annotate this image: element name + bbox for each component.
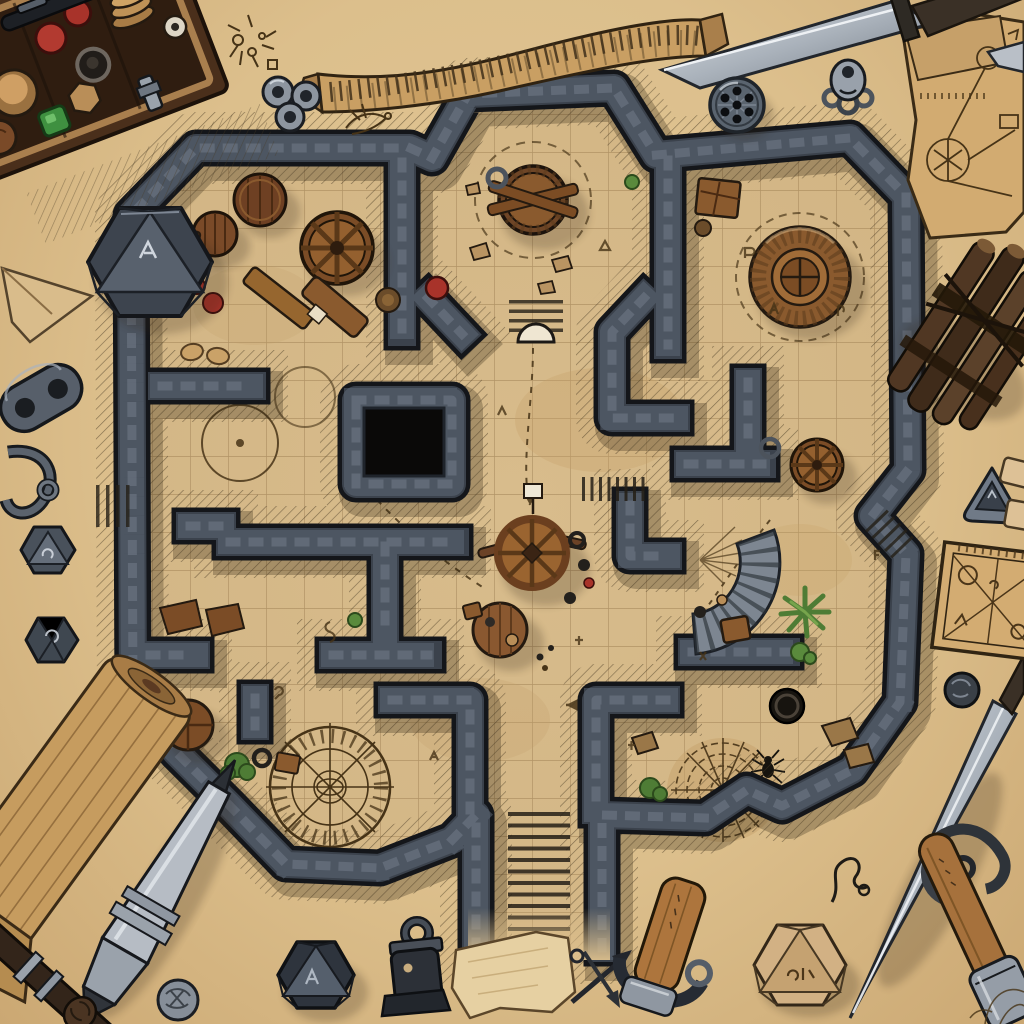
red-pot [426, 277, 448, 299]
dungeon-map-illustration [0, 0, 1024, 1024]
token [578, 559, 590, 571]
red-token [584, 578, 594, 588]
tuft [348, 613, 362, 627]
token [717, 595, 727, 605]
pot [695, 220, 711, 236]
crate [275, 752, 301, 774]
chain-clasp [0, 350, 90, 440]
paper-dart [2, 268, 92, 342]
dark-coin [945, 673, 979, 707]
token [564, 592, 576, 604]
black-pit [364, 408, 444, 476]
engraved-coin [158, 980, 198, 1020]
wagon-wheel [301, 212, 373, 284]
small-crate [463, 602, 483, 620]
metal-hook [6, 451, 56, 513]
ink-bottle-charm [382, 921, 450, 1016]
bug-doodle [228, 15, 277, 69]
wire-squiggle [832, 859, 869, 902]
crate [720, 616, 751, 643]
dark-d20 [278, 942, 368, 1022]
square-diagram [932, 542, 1024, 661]
small-banner [524, 484, 542, 498]
wagon-wheel [791, 439, 843, 491]
die-small-2 [26, 618, 78, 662]
token [694, 606, 706, 618]
mug [485, 617, 495, 627]
tan-d20 [754, 925, 860, 1017]
die-small-1 [21, 527, 75, 573]
parchment-table [0, 0, 1024, 1024]
plate [506, 634, 518, 646]
tuft [625, 175, 639, 189]
